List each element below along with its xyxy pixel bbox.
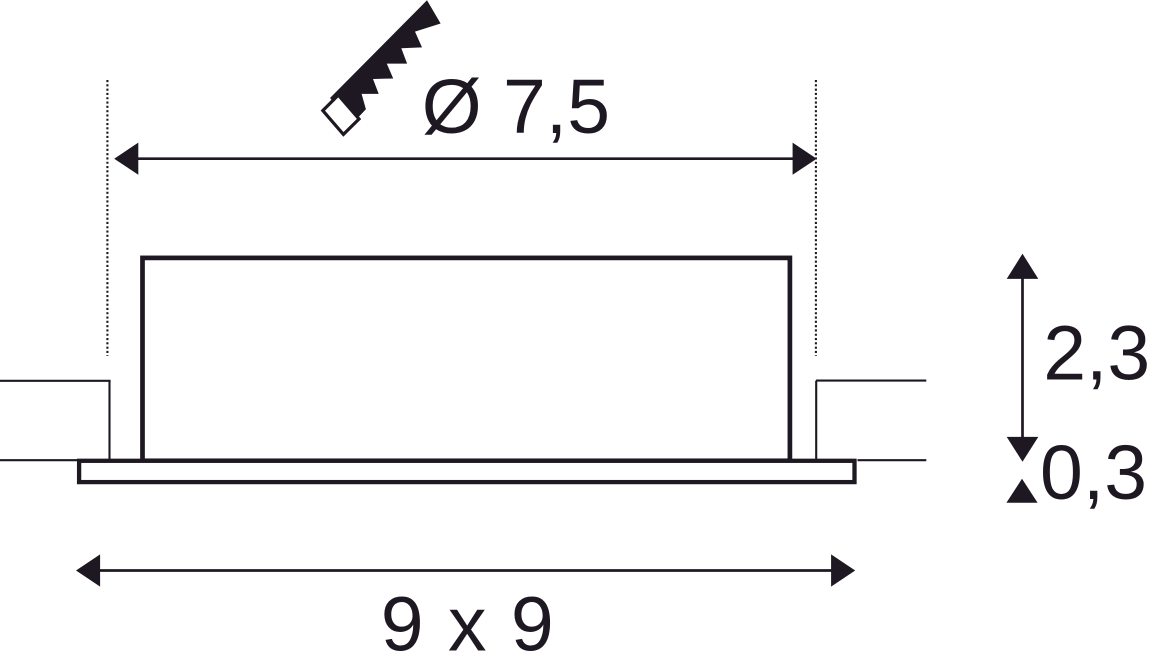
svg-text:0,3: 0,3: [1040, 430, 1147, 516]
svg-text:9 x 9: 9 x 9: [381, 581, 555, 656]
svg-text:2,3: 2,3: [1043, 310, 1150, 396]
svg-text:Ø 7,5: Ø 7,5: [422, 64, 610, 150]
